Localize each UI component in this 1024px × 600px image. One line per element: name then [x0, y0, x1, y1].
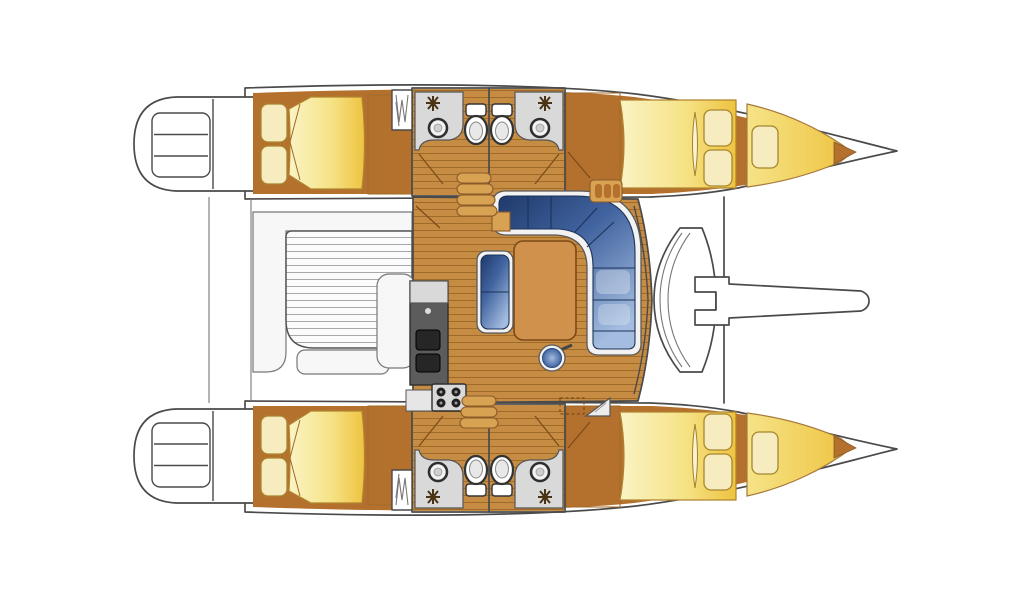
bowsprit: [695, 277, 869, 325]
galley-knob: [425, 308, 431, 314]
foredeck-seat: [654, 228, 716, 372]
cockpit-aft-bench: [297, 350, 389, 374]
step-tread: [457, 173, 491, 183]
step-tread: [461, 407, 497, 417]
burner-center: [455, 402, 458, 405]
cockpit-module: [377, 274, 415, 368]
cockpit: [209, 197, 415, 403]
burner-center: [455, 391, 458, 394]
step-tread: [460, 418, 498, 428]
step-tread: [457, 195, 495, 205]
port-hull: [134, 85, 897, 199]
cushion-sheen: [598, 304, 630, 325]
stove-top: [432, 384, 466, 411]
louver-slat: [613, 184, 620, 198]
step-tread: [457, 206, 497, 216]
salon-table: [514, 241, 576, 340]
stool-cushion: [543, 349, 562, 368]
boat-plan-svg: [0, 0, 1024, 600]
louver-slat: [604, 184, 611, 198]
step-tread: [457, 184, 493, 194]
step-tread: [462, 396, 496, 406]
burner-center: [440, 402, 443, 405]
louver-slat: [595, 184, 602, 198]
burner-center: [440, 391, 443, 394]
companionway-steps-starboard: [460, 396, 498, 428]
boat-floor-plan-canvas: [0, 0, 1024, 600]
galley-counter-top: [410, 281, 448, 303]
galley-sink-basin: [416, 330, 440, 350]
cushion-sheen: [596, 270, 630, 294]
louver-locker: [590, 180, 622, 202]
galley-sink-basin: [416, 354, 440, 372]
foredeck: [654, 197, 869, 403]
salon: [406, 173, 652, 428]
stove-4-burner: [432, 384, 466, 411]
starboard-hull: [134, 401, 897, 515]
settee-bench: [477, 251, 513, 333]
galley-sink-unit: [406, 390, 432, 411]
